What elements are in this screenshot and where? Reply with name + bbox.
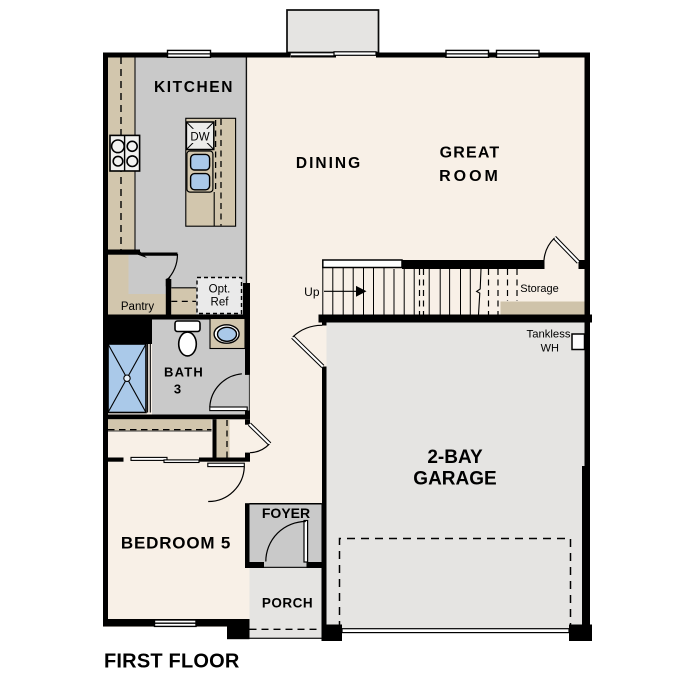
svg-text:DW: DW [190, 131, 209, 143]
svg-text:3: 3 [174, 382, 181, 397]
svg-text:BEDROOM 5: BEDROOM 5 [121, 533, 231, 552]
svg-text:ROOM: ROOM [439, 168, 501, 185]
svg-text:Opt.: Opt. [209, 284, 231, 296]
svg-text:BATH: BATH [164, 365, 204, 380]
svg-text:Up: Up [304, 285, 320, 299]
svg-text:Ref: Ref [211, 297, 230, 309]
svg-text:GARAGE: GARAGE [413, 469, 496, 490]
svg-text:WH: WH [541, 343, 559, 355]
svg-text:Pantry: Pantry [121, 301, 154, 313]
svg-text:FOYER: FOYER [262, 505, 310, 521]
svg-text:PORCH: PORCH [262, 596, 313, 611]
svg-text:GREAT: GREAT [440, 145, 501, 162]
svg-text:Tankless: Tankless [527, 329, 571, 341]
svg-text:FIRST FLOOR: FIRST FLOOR [104, 651, 240, 673]
svg-text:DINING: DINING [296, 155, 362, 172]
svg-text:KITCHEN: KITCHEN [154, 79, 234, 96]
svg-text:Storage: Storage [520, 283, 559, 295]
svg-text:2-BAY: 2-BAY [427, 447, 483, 468]
